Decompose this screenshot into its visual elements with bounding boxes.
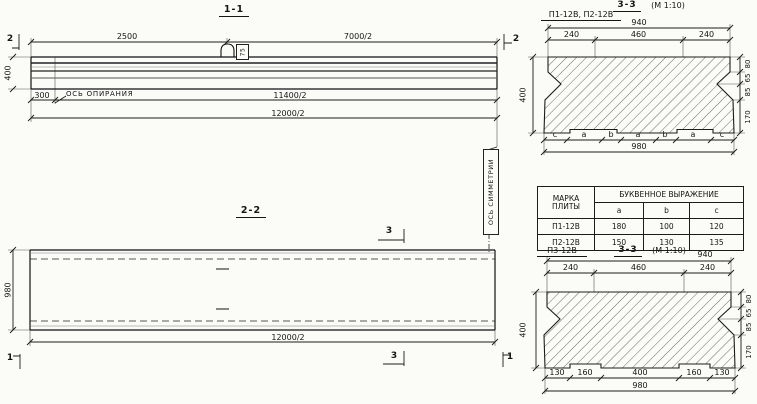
dim-11400-2: 11400/2 [262,91,318,100]
dim-400-vertical-bottom-section: 400 [516,314,530,346]
cut-mark-2-left: 2 [4,34,16,44]
section-2-2-title: 2-2 [236,205,266,218]
letter-b-2: b [658,130,672,139]
dim-85-b: 85 [742,317,756,337]
blueprint-sheet: 1-1 2500 7000/2 2 2 400 75 300 ОСЬ ОПИРА… [0,0,757,404]
dim-240-right-b: 240 [685,263,730,272]
cell-c: 135 [690,235,744,251]
section-2-2-geometry [8,229,511,369]
dim-460-b: 460 [616,263,661,272]
dim-12000-2-top: 12000/2 [258,109,318,118]
cell-b: 100 [644,219,690,235]
table-subheader-a: a [595,203,644,219]
lifting-loop-tag: 75 [236,44,249,60]
dim-240-left: 240 [549,30,594,39]
letter-c-1: c [548,130,562,139]
dim-940-top: 940 [622,18,656,27]
dim-7000-2: 7000/2 [330,32,386,41]
cut-mark-3-top: 3 [382,226,396,236]
dim-170-b: 170 [742,339,756,364]
cell-a: 180 [595,219,644,235]
cut-mark-1-left: 1 [4,353,16,363]
plate-mark-bottom: П3-12В [537,246,587,257]
table-subheader-c: c [690,203,744,219]
dim-130-right: 130 [707,368,737,377]
letter-b-1: b [604,130,618,139]
dim-300: 300 [30,91,54,100]
cut-mark-2-right: 2 [510,34,522,44]
cell-c: 120 [690,219,744,235]
dim-170: 170 [741,104,755,129]
letter-c-2: c [715,130,729,139]
table-header-expression: БУКВЕННОЕ ВЫРАЖЕНИЕ [595,187,744,203]
letter-a-1: a [577,130,591,139]
dim-400-vertical-top-section: 400 [516,79,530,111]
section-3-3-top-scale: (М 1:10) [644,1,692,10]
table-subheader-b: b [644,203,690,219]
dim-980-vertical: 980 [1,274,15,306]
table-header-mark: МАРКА ПЛИТЫ [538,187,595,219]
plate-marks-top: П1-12В, П2-12В [541,10,621,21]
letter-a-3: a [686,130,700,139]
letter-a-2: a [631,130,645,139]
dim-980-top-section: 980 [620,142,658,151]
dim-940-bottom: 940 [690,250,720,259]
table-row: П1-12В 180 100 120 [538,219,744,235]
dim-980-bottom-section: 980 [621,381,659,390]
dim-400-vertical: 400 [1,57,15,89]
dim-460: 460 [616,30,661,39]
dim-2500: 2500 [104,32,150,41]
section-3-3-bottom-title: 3-3 [614,245,642,257]
dim-400-bottom: 400 [625,368,655,377]
cut-mark-3-bottom: 3 [387,351,401,361]
section-3-3-bottom-scale: (М 1:10) [645,246,693,255]
dim-240-right: 240 [684,30,729,39]
symmetry-axis-label: ОСЬ СИММЕТРИИ [483,149,499,235]
cut-mark-1-right: 1 [504,352,516,362]
cell-mark: П1-12В [538,219,595,235]
dim-160-right: 160 [679,368,709,377]
dim-130-left: 130 [542,368,572,377]
dim-85: 85 [741,82,755,102]
section-1-1-title: 1-1 [219,4,249,17]
letter-dimension-table: МАРКА ПЛИТЫ БУКВЕННОЕ ВЫРАЖЕНИЕ a b c П1… [537,186,744,251]
support-axis-label: ОСЬ ОПИРАНИЯ [66,90,133,99]
dim-240-left-b: 240 [548,263,593,272]
dim-160-left: 160 [570,368,600,377]
dim-12000-2-bottom: 12000/2 [258,333,318,342]
